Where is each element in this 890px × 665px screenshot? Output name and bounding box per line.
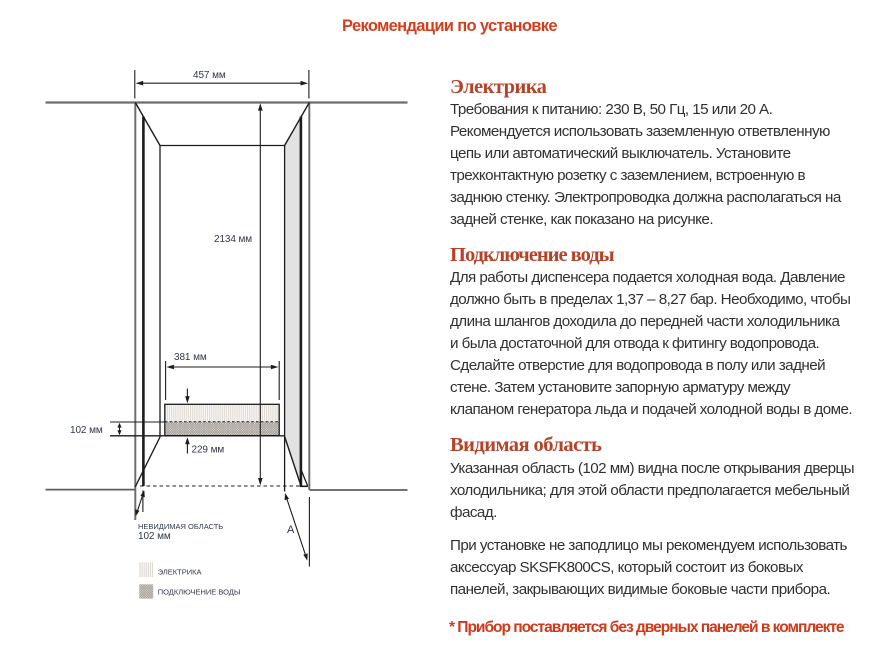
- svg-text:A: A: [287, 524, 295, 536]
- svg-text:102 мм: 102 мм: [70, 425, 103, 436]
- svg-text:ЭЛЕКТРИКА: ЭЛЕКТРИКА: [158, 568, 202, 577]
- svg-text:НЕВИДИМАЯ ОБЛАСТЬ: НЕВИДИМАЯ ОБЛАСТЬ: [138, 522, 223, 531]
- svg-text:381 мм: 381 мм: [174, 352, 207, 363]
- svg-text:2134 мм: 2134 мм: [214, 234, 252, 245]
- svg-text:102 мм: 102 мм: [138, 531, 171, 542]
- svg-text:457 мм: 457 мм: [193, 70, 226, 81]
- svg-text:ПОДКЛЮЧЕНИЕ ВОДЫ: ПОДКЛЮЧЕНИЕ ВОДЫ: [158, 588, 241, 597]
- svg-text:229 мм: 229 мм: [192, 445, 225, 456]
